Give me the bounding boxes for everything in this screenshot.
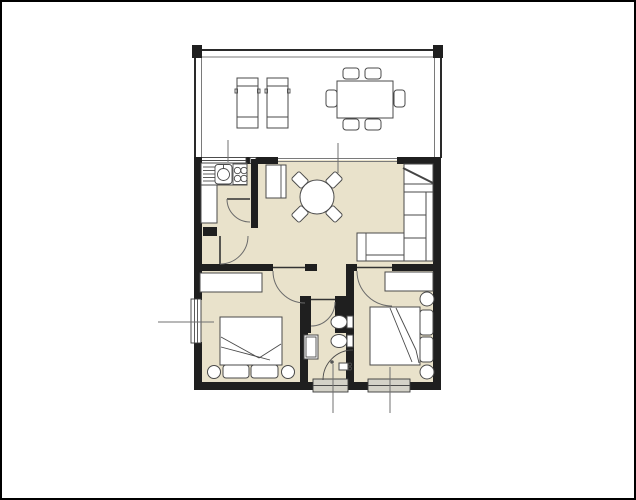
terrace-dining-set <box>326 68 405 130</box>
terrace-chair <box>343 119 359 130</box>
sofa-cushion <box>404 215 426 238</box>
sofa-cushion <box>404 238 426 261</box>
sofa-chaise <box>357 233 404 261</box>
kitchen-wall <box>251 159 258 228</box>
terrace-post-left <box>192 45 202 58</box>
toilet <box>331 316 353 329</box>
terrace-post-right <box>433 45 443 58</box>
terrace <box>192 45 443 158</box>
right-bedroom-window <box>368 379 410 392</box>
terrace-dining-table <box>337 81 393 118</box>
pillow <box>251 365 278 378</box>
pillow <box>223 365 249 378</box>
sun-lounger-2 <box>265 78 290 128</box>
nightstand <box>282 366 295 379</box>
entrance-door <box>403 164 433 185</box>
sun-lounger-1 <box>235 78 260 128</box>
left-bedroom-window <box>191 299 201 343</box>
double-bed <box>370 307 420 365</box>
bathroom-window <box>313 379 348 392</box>
tall-cabinet <box>266 165 286 198</box>
round-table <box>300 180 334 214</box>
terrace-chair <box>365 68 381 79</box>
terrace-chair <box>343 68 359 79</box>
sofa-cushion <box>404 192 426 215</box>
nightstand <box>420 292 434 306</box>
shower <box>304 335 318 359</box>
wardrobe <box>385 272 433 291</box>
terrace-chair <box>365 119 381 130</box>
bathroom-door-stub-left <box>300 296 311 333</box>
pillow <box>420 310 433 335</box>
bidet <box>331 335 353 348</box>
terrace-chair <box>394 90 405 107</box>
terrace-chair <box>326 90 337 107</box>
nightstand <box>420 365 434 379</box>
sofa-armrest <box>404 184 433 192</box>
kitchen-wall-stub <box>203 227 217 236</box>
nightstand <box>208 366 221 379</box>
double-bed <box>220 317 282 365</box>
pillow <box>420 337 433 362</box>
floor-plan-svg <box>2 2 634 498</box>
sofa-back <box>426 192 433 261</box>
wardrobe <box>200 273 262 292</box>
floor-plan-image <box>0 0 636 500</box>
kitchen-base-counter <box>201 185 217 223</box>
